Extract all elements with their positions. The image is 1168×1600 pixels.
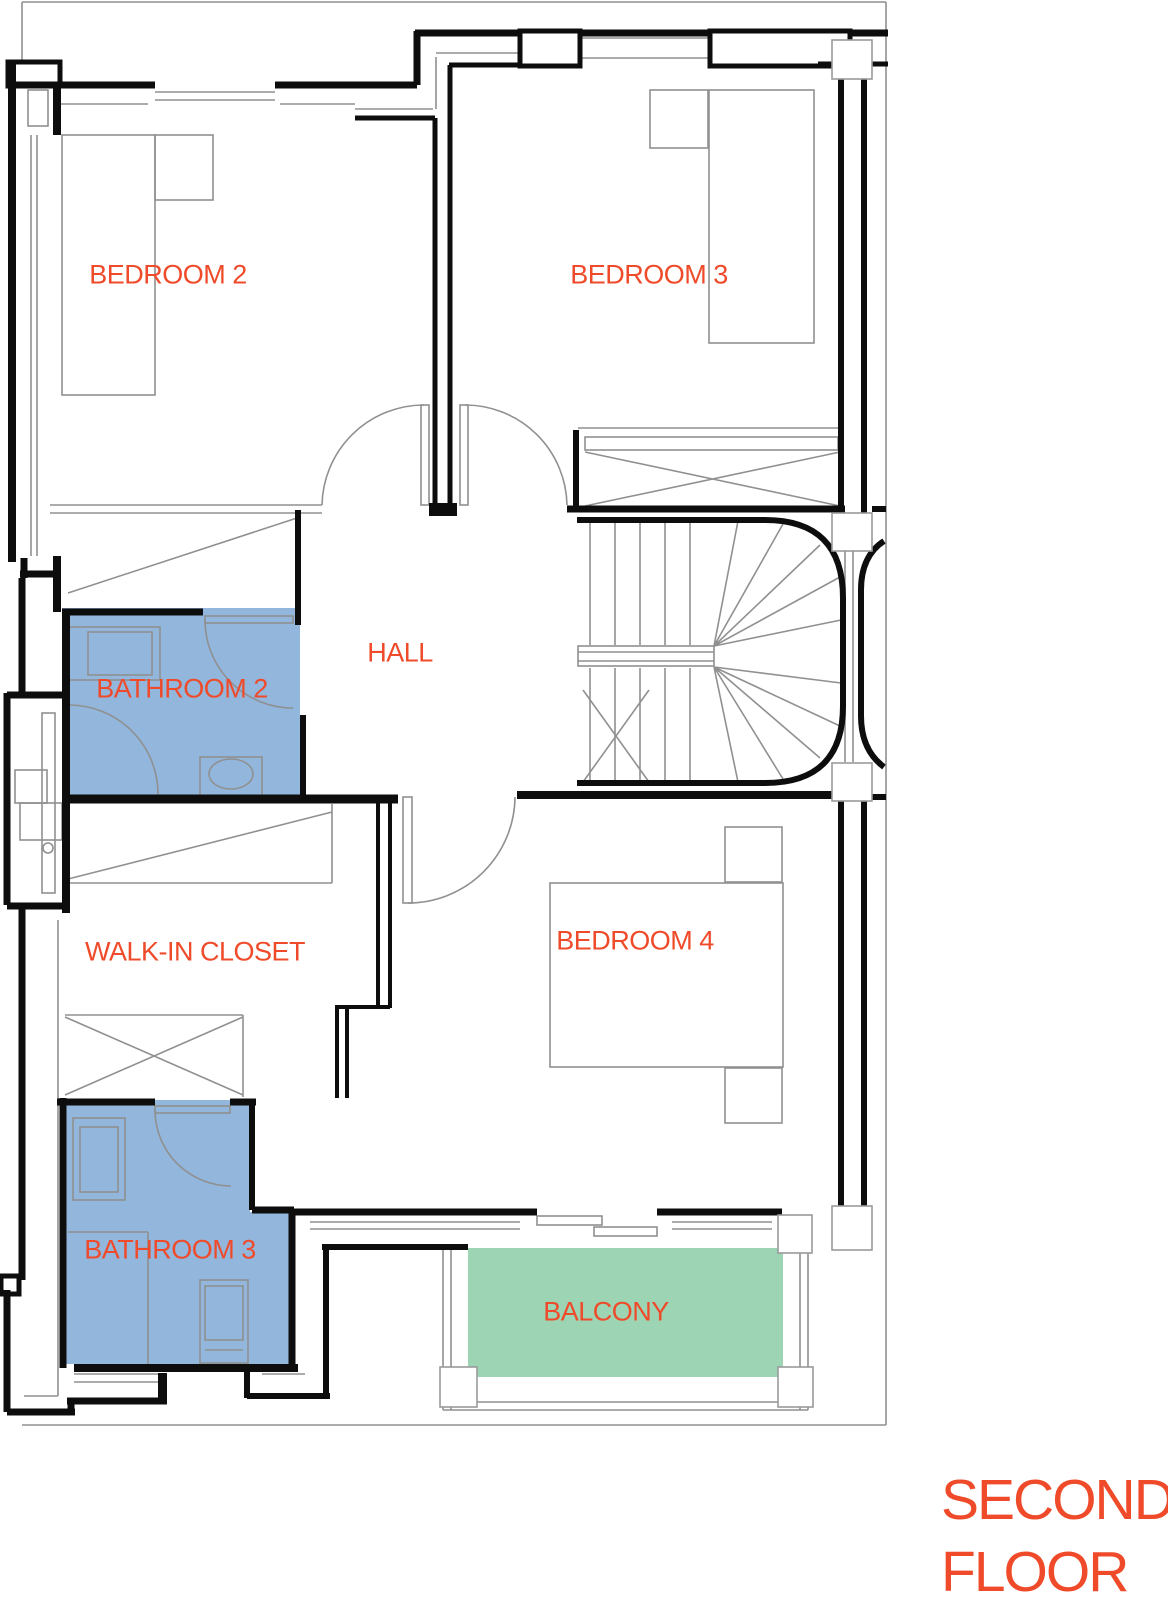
sliding-door-panel-a [537,1216,602,1225]
nightstand-bedroom-4-a [725,827,782,882]
room-label-bathroom-2: BATHROOM 2 [96,674,268,705]
door-swing-bedroom-2 [322,405,424,505]
room-label-walk-in-closet: WALK-IN CLOSET [85,937,305,968]
bed-bedroom-3 [709,90,814,343]
room-label-bedroom-4: BEDROOM 4 [556,926,714,957]
sliding-door-panel-b [594,1227,657,1236]
door-leaf-bedroom-4 [403,797,412,903]
nightstand-bedroom-2 [155,135,213,200]
pillars [440,40,872,1407]
door-leaf-bedroom-2 [421,405,429,505]
door-leaf-bedroom-3 [460,405,468,505]
stair-treads [578,521,841,782]
floor-title-line-1: SECOND [941,1464,1168,1536]
room-label-bedroom-2: BEDROOM 2 [89,260,247,291]
floor-plan-page: BEDROOM 2 BEDROOM 3 HALL BATHROOM 2 WALK… [0,0,1168,1600]
nightstand-bedroom-3 [650,90,708,148]
nightstand-bedroom-4-b [725,1068,782,1123]
room-label-balcony: BALCONY [543,1297,669,1328]
bed-bedroom-4 [550,883,783,1067]
door-swing-bedroom-3 [465,405,567,505]
room-label-bathroom-3: BATHROOM 3 [84,1235,256,1266]
floor-plan-drawing [0,0,1168,1600]
room-label-hall: HALL [367,638,433,669]
door-swing-bedroom-4 [408,797,515,903]
floor-title: SECOND FLOOR [941,1464,1168,1600]
floor-title-line-2: FLOOR [941,1536,1168,1600]
room-label-bedroom-3: BEDROOM 3 [570,260,728,291]
